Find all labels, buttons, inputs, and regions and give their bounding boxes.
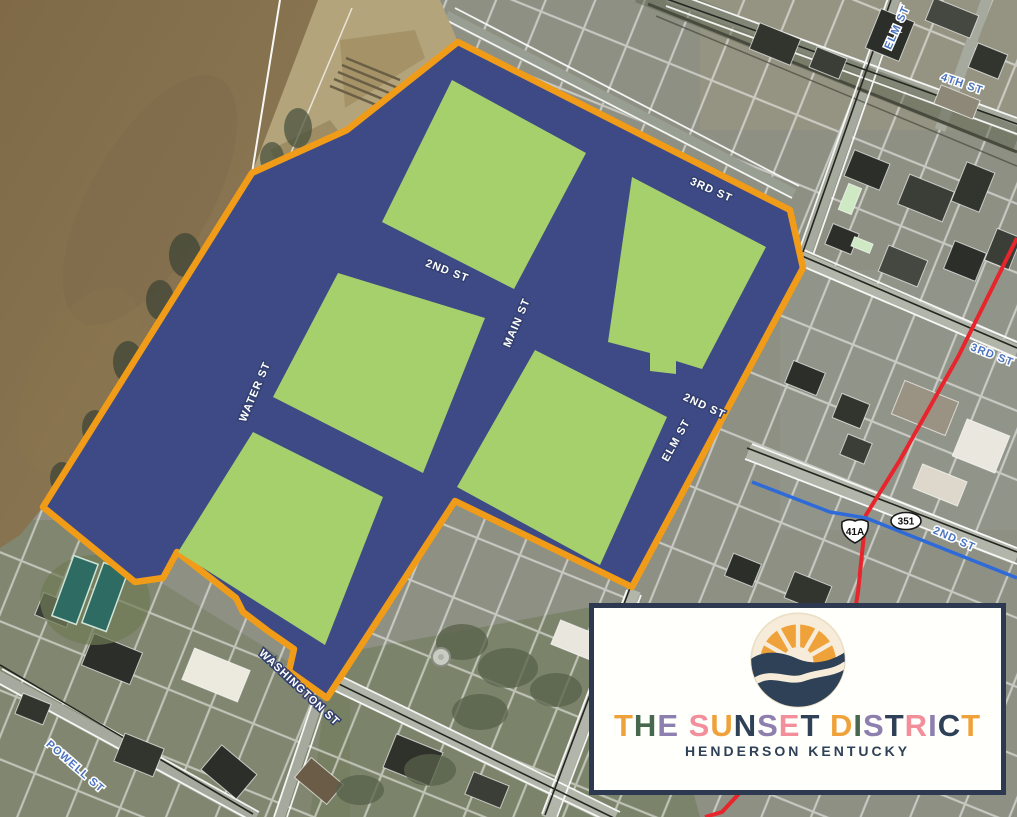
sunset-district-logo-badge: THE SUNSET DISTRICT HENDERSON KENTUCKY [589, 603, 1006, 795]
water-tower [432, 648, 450, 666]
logo-subtitle: HENDERSON KENTUCKY [685, 743, 910, 759]
route-shield-41a-label: 41A [846, 527, 864, 538]
sunset-logo-icon [746, 608, 850, 712]
route-shield-351: 351 [891, 513, 921, 530]
logo-title: THE SUNSET DISTRICT [614, 710, 981, 741]
sunset-district-map: 3RD ST 2ND ST 2ND ST MAIN ST WATER ST EL… [0, 0, 1017, 817]
route-shield-351-label: 351 [898, 517, 915, 528]
